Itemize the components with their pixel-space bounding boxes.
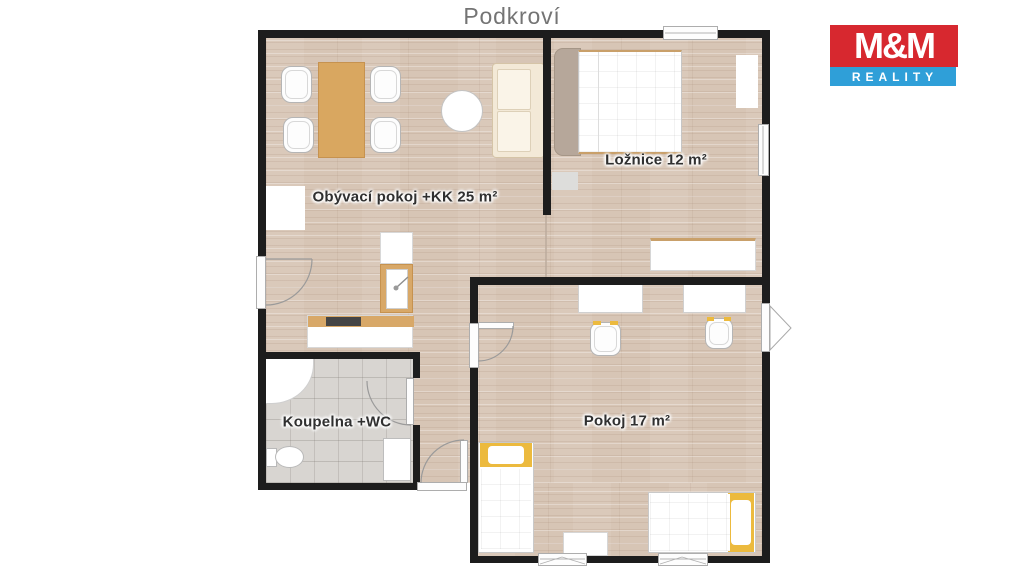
door-leaf-bathroom (406, 378, 414, 425)
window-living-left (256, 256, 266, 309)
wall-room-left-upper (470, 277, 478, 323)
wall-room-bottom (470, 556, 770, 563)
sideboard (650, 238, 756, 271)
window-room-bottom-1 (538, 553, 587, 566)
dresser (736, 55, 758, 108)
label-living-room: Obývací pokoj +KK 25 m² (312, 189, 497, 206)
wall-bathroom-right-lower (413, 425, 420, 490)
door-opening-room (469, 323, 479, 368)
floor-plan-page: Podkroví M&M REALITY (0, 0, 1024, 576)
sofa (492, 63, 545, 158)
window-bedroom-right (758, 124, 769, 176)
single-bed (478, 442, 534, 553)
window-room-right (761, 303, 770, 352)
label-bedroom: Ložnice 12 m² (605, 152, 707, 169)
dining-chair (281, 66, 312, 103)
dining-table (318, 62, 365, 158)
wall-room-top (470, 277, 762, 285)
door-leaf-room (478, 322, 514, 329)
washing-machine (383, 438, 411, 481)
dining-chair (283, 117, 314, 153)
entrance-threshold (417, 482, 467, 491)
agency-logo: M&M REALITY (830, 25, 958, 86)
single-bed-horizontal (648, 492, 756, 553)
window-room-bottom-2 (658, 553, 708, 566)
logo-mm-box: M&M (830, 25, 958, 67)
wall-room-left-lower (470, 368, 478, 563)
bed-headboard (554, 48, 581, 156)
kitchen-tall-cabinet (380, 232, 413, 264)
desk-chair (705, 318, 733, 349)
page-title: Podkroví (463, 3, 560, 30)
wall-bathroom-right-upper (413, 352, 420, 378)
cooktop (326, 317, 361, 326)
desk (683, 284, 746, 313)
logo-mm-text: M&M (854, 28, 934, 64)
desk (578, 283, 643, 313)
label-bathroom: Koupelna +WC (283, 414, 392, 431)
window-bedroom-top (663, 26, 718, 40)
dining-chair (370, 117, 401, 153)
rug-cabinet (263, 186, 305, 230)
dining-chair (370, 66, 401, 103)
bedside-mat (552, 172, 578, 190)
label-room: Pokoj 17 m² (584, 413, 670, 430)
wall-right (762, 30, 770, 563)
wall-divider-living-bedroom (543, 30, 551, 215)
kitchen-sink-unit (380, 264, 413, 313)
logo-reality-box: REALITY (830, 67, 956, 86)
door-leaf-entrance (460, 440, 468, 483)
double-bed (578, 50, 682, 154)
kitchen-counter (307, 315, 413, 348)
logo-reality-text: REALITY (848, 71, 938, 83)
wall-bathroom-top (258, 352, 420, 359)
wall-bottom-left (258, 483, 417, 490)
round-table (441, 90, 483, 132)
desk-chair (590, 322, 621, 356)
